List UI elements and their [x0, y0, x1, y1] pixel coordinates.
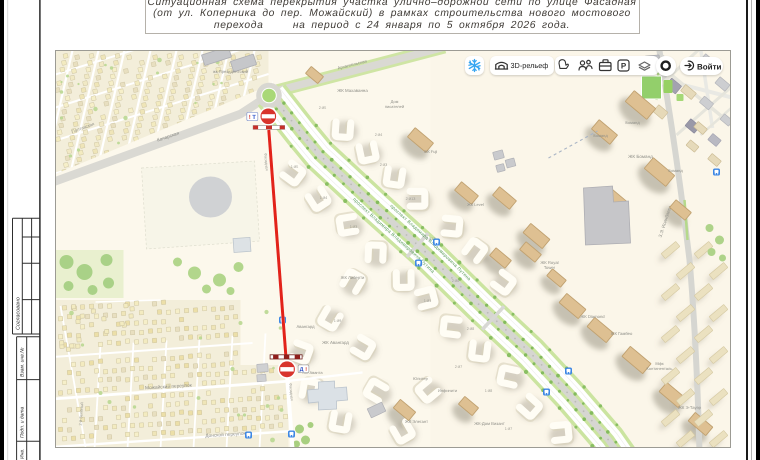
svg-text:1-й1: 1-й1	[424, 299, 432, 303]
svg-text:1-й7: 1-й7	[505, 427, 513, 431]
svg-text:Инфинити: Инфинити	[438, 388, 457, 393]
svg-text:Инв.: Инв.	[20, 449, 26, 459]
svg-text:жк Президентский: жк Президентский	[213, 69, 249, 74]
svg-text:Боманд: Боманд	[625, 120, 640, 125]
svg-text:P: P	[621, 61, 627, 70]
svg-text:Войти: Войти	[697, 62, 722, 71]
svg-text:ЖК Level: ЖК Level	[467, 202, 484, 207]
svg-text:Д: Д	[300, 367, 304, 373]
svg-text:2-й5: 2-й5	[319, 106, 327, 110]
svg-text:1-й4: 1-й4	[320, 196, 328, 200]
svg-text:Согласовано: Согласовано	[15, 297, 21, 330]
svg-text:Tower: Tower	[544, 265, 556, 270]
svg-text:ЖК Fuji: ЖК Fuji	[424, 149, 438, 154]
svg-text:2-й0: 2-й0	[452, 279, 460, 283]
svg-text:Боманд: Боманд	[593, 133, 608, 138]
svg-text:ЖК Элегант: ЖК Элегант	[405, 419, 428, 424]
svg-text:1-й9: 1-й9	[334, 319, 342, 323]
svg-text:ЖК Махаванна: ЖК Махаванна	[337, 88, 368, 93]
svg-text:Боманд: Боманд	[668, 168, 683, 173]
svg-text:Авангард: Авангард	[296, 324, 315, 329]
svg-text:Юпитер: Юпитер	[413, 376, 428, 381]
svg-text:!: !	[249, 114, 251, 121]
svg-text:2-й7: 2-й7	[455, 365, 463, 369]
svg-text:ЖК Diamond: ЖК Diamond	[580, 314, 605, 319]
svg-text:2-й3: 2-й3	[380, 163, 388, 167]
svg-text:!: !	[305, 367, 307, 373]
svg-text:2-й13: 2-й13	[406, 197, 416, 201]
svg-text:ЖК Либерти: ЖК Либерти	[341, 275, 365, 280]
svg-text:1-й5: 1-й5	[291, 165, 299, 169]
svg-text:ЖК Авангард: ЖК Авангард	[322, 340, 349, 345]
svg-text:1-й8: 1-й8	[485, 389, 493, 393]
svg-text:ЖК Э-Тауэр: ЖК Э-Тауэр	[678, 405, 702, 410]
svg-text:2-й8: 2-й8	[467, 327, 475, 331]
svg-text:Континенталь: Континенталь	[647, 366, 673, 371]
svg-text:ЖК Боманд: ЖК Боманд	[628, 154, 653, 159]
svg-text:2-й4: 2-й4	[375, 133, 383, 137]
svg-text:ЖК Гамбео: ЖК Гамбео	[611, 331, 633, 336]
svg-text:Т: Т	[252, 114, 256, 121]
svg-text:1-й3: 1-й3	[350, 225, 358, 229]
svg-text:Подп. и дата: Подп. и дата	[20, 406, 26, 438]
svg-text:ЖК-Дом Визант: ЖК-Дом Визант	[474, 421, 505, 426]
svg-text:писателей: писателей	[385, 104, 404, 109]
svg-text:Взам. инв.№: Взам. инв.№	[20, 347, 26, 377]
